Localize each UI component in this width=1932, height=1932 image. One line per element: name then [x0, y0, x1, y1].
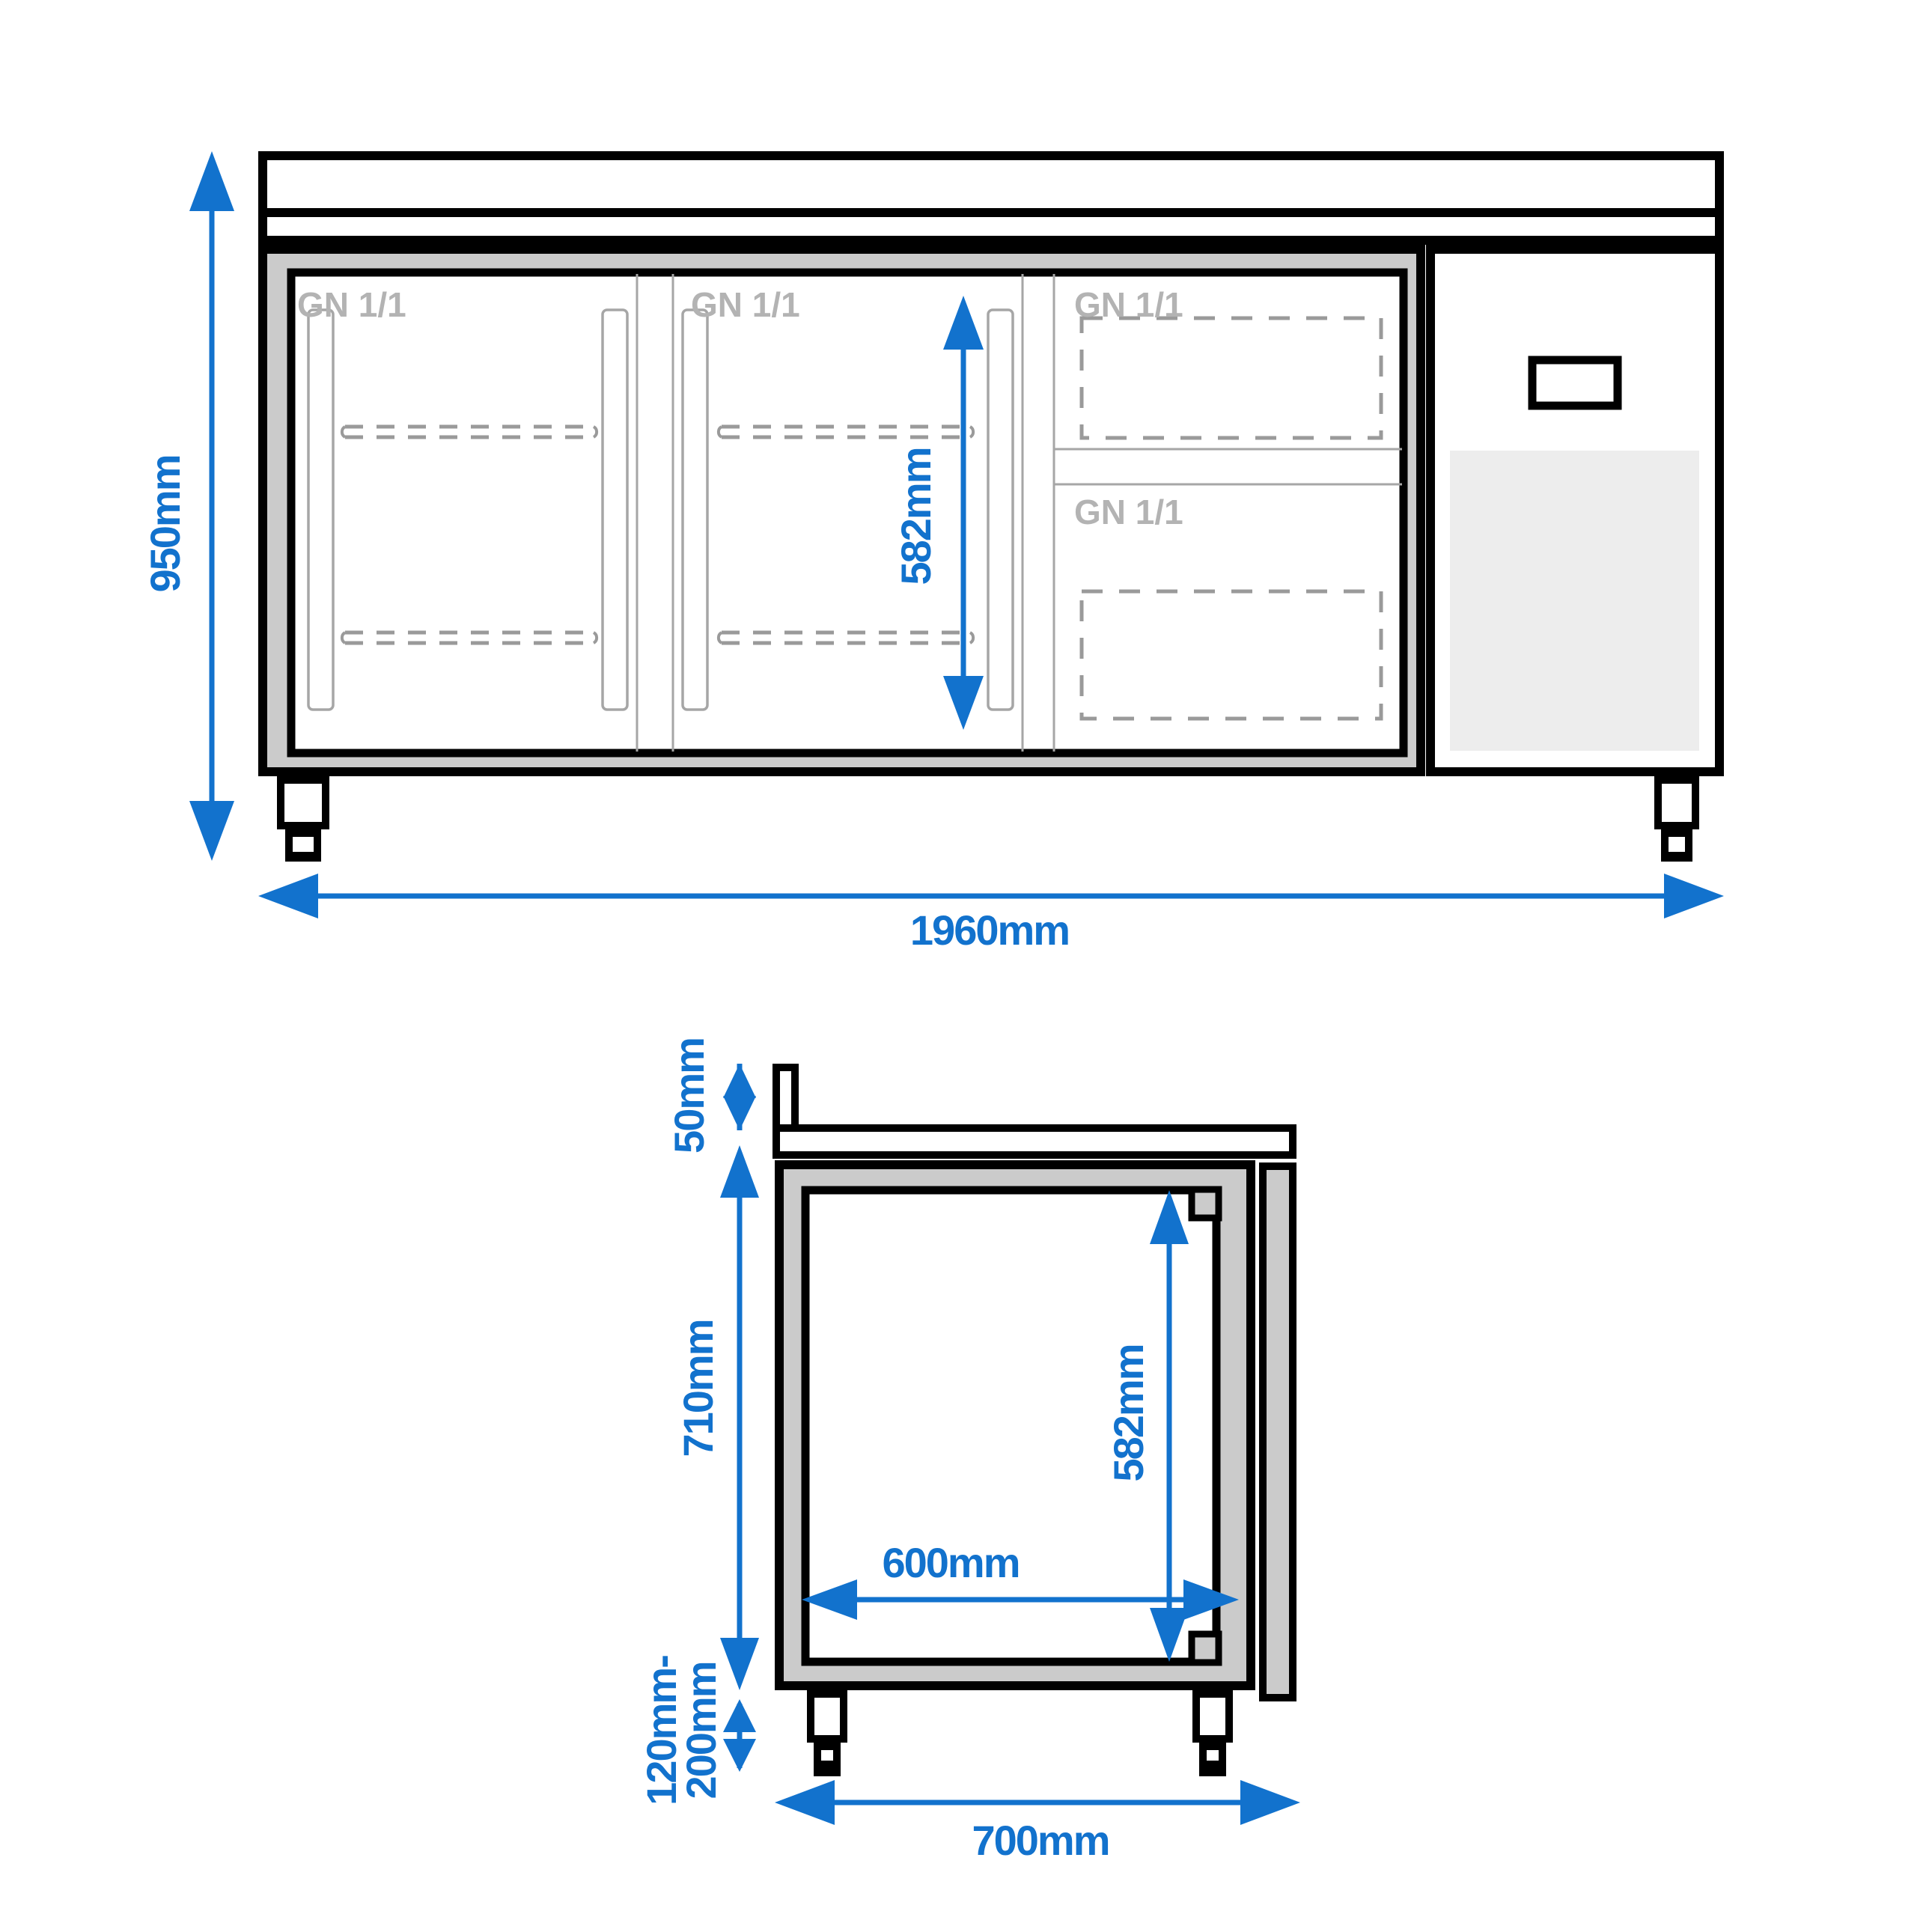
dim-front-width: 1960mm: [258, 874, 1724, 954]
gn-label-drawer1: GN 1/1: [1074, 285, 1183, 324]
side-right-foot: [1196, 1694, 1229, 1776]
door1-left-handle: [308, 310, 333, 710]
dim-side-depth-label: 700mm: [972, 1817, 1109, 1864]
side-left-foot: [811, 1694, 844, 1776]
dim-side-interior-height-label: 582mm: [1105, 1344, 1152, 1481]
side-step-top: [1192, 1189, 1219, 1218]
dim-front-height: 950mm: [141, 151, 234, 861]
side-step-bottom: [1192, 1634, 1219, 1663]
front-view: GN 1/1 GN 1/1 GN 1/1 GN 1/1 950mm: [141, 151, 1724, 954]
side-backsplash: [776, 1067, 795, 1128]
side-interior: [805, 1190, 1216, 1662]
gn-label-drawer2: GN 1/1: [1074, 493, 1183, 531]
side-view: 50mm 710mm 120mm- 200mm 700mm: [638, 1038, 1300, 1864]
vent-panel: [1450, 451, 1699, 751]
front-left-foot: [281, 780, 326, 862]
technical-drawing: GN 1/1 GN 1/1 GN 1/1 GN 1/1 950mm: [0, 0, 1932, 1932]
front-interior: [291, 272, 1404, 753]
dim-side-interior-depth-label: 600mm: [882, 1539, 1019, 1586]
door2-right-handle: [988, 310, 1013, 710]
dim-side-backsplash-label: 50mm: [665, 1038, 713, 1154]
gn-label-door1: GN 1/1: [297, 285, 406, 324]
dim-side-feet-max-label: 200mm: [677, 1662, 725, 1799]
gn-label-door2: GN 1/1: [691, 285, 800, 324]
side-worktop: [776, 1128, 1293, 1155]
dim-side-body-height-label: 710mm: [674, 1320, 722, 1457]
dim-side-backsplash: 50mm: [665, 1038, 756, 1154]
front-worktop: [263, 156, 1719, 240]
dim-front-height-label: 950mm: [141, 455, 189, 592]
door1-right-handle: [603, 310, 627, 710]
dim-side-depth: 700mm: [775, 1780, 1300, 1864]
control-display: [1532, 360, 1618, 406]
front-right-foot: [1658, 780, 1695, 862]
dim-side-body-height: 710mm: [674, 1145, 759, 1690]
dim-front-width-label: 1960mm: [910, 906, 1069, 954]
door2-left-handle: [683, 310, 707, 710]
dim-front-interior-height-label: 582mm: [892, 448, 939, 585]
side-door: [1263, 1166, 1293, 1698]
